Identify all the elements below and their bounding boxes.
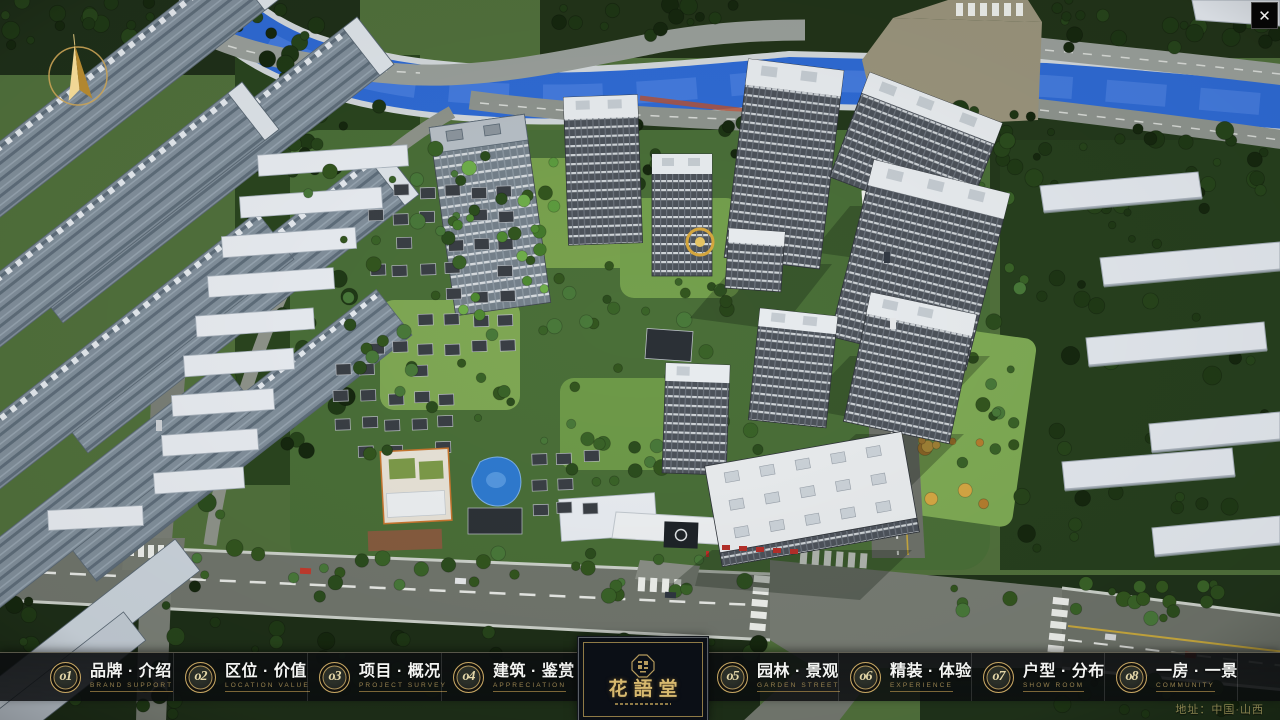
menu-item-label: 项目 · 概况 [359, 663, 441, 680]
menu-item-room-view[interactable]: o8 一房 · 一景 COMMUNITY [1104, 653, 1237, 701]
menu-number-badge: o2 [185, 662, 216, 693]
menu-group-right: o5 园林 · 景观 GARDEN STREET o6 精装 · 体验 EXPE… [705, 653, 1238, 701]
close-icon: ✕ [1258, 7, 1271, 25]
aerial-site-render[interactable] [0, 0, 1280, 720]
menu-item-label: 精装 · 体验 [890, 663, 971, 680]
menu-item-landscape[interactable]: o5 园林 · 景观 GARDEN STREET [705, 653, 838, 701]
menu-number-badge: o5 [717, 662, 748, 693]
menu-item-label: 户型 · 分布 [1023, 663, 1104, 680]
logo-subtitle-divider [615, 703, 671, 705]
menu-item-subtitle: GARDEN STREET [757, 682, 840, 692]
menu-number-badge: o3 [319, 662, 350, 693]
menu-item-subtitle: EXPERIENCE [890, 682, 953, 692]
project-address: 地址：中国·山西 [1175, 701, 1264, 717]
sales-presentation-screen: ✕ o1 品牌 · 介绍 BRAND SUPPORT o2 区位 · 价值 LO… [0, 0, 1280, 720]
menu-number-badge: o7 [983, 662, 1014, 693]
menu-item-label: 品牌 · 介绍 [90, 663, 173, 680]
menu-item-subtitle: BRAND SUPPORT [90, 682, 173, 692]
menu-item-label: 区位 · 价值 [225, 663, 307, 680]
menu-item-location-value[interactable]: o2 区位 · 价值 LOCATION VALUE [173, 653, 307, 701]
menu-item-subtitle: SHOW ROOM [1023, 682, 1084, 692]
menu-number-badge: o6 [850, 662, 881, 693]
menu-item-subtitle: PROJECT SURVEY [359, 682, 447, 692]
menu-item-subtitle: LOCATION VALUE [225, 682, 310, 692]
project-logo-plaque: 花語堂 [578, 637, 708, 720]
menu-item-subtitle: APPRECIATION [493, 682, 566, 692]
menu-item-interior-experience[interactable]: o6 精装 · 体验 EXPERIENCE [838, 653, 971, 701]
menu-group-left: o1 品牌 · 介绍 BRAND SUPPORT o2 区位 · 价值 LOCA… [39, 653, 575, 701]
menu-item-brand-intro[interactable]: o1 品牌 · 介绍 BRAND SUPPORT [39, 653, 173, 701]
menu-item-subtitle: COMMUNITY [1156, 682, 1215, 692]
menu-item-label: 一房 · 一景 [1156, 663, 1237, 680]
menu-item-project-overview[interactable]: o3 项目 · 概况 PROJECT SURVEY [307, 653, 441, 701]
menu-number-badge: o1 [50, 662, 81, 693]
menu-item-label: 园林 · 景观 [757, 663, 838, 680]
menu-item-architecture[interactable]: o4 建筑 · 鉴赏 APPRECIATION [441, 653, 575, 701]
close-button[interactable]: ✕ [1251, 2, 1278, 29]
menu-item-floorplan-distribution[interactable]: o7 户型 · 分布 SHOW ROOM [971, 653, 1104, 701]
seal-emblem-icon [631, 654, 655, 678]
menu-number-badge: o8 [1116, 662, 1147, 693]
project-logo-title: 花語堂 [602, 680, 683, 700]
menu-item-label: 建筑 · 鉴赏 [493, 663, 575, 680]
vignette-overlay [0, 0, 1280, 720]
menu-number-badge: o4 [453, 662, 484, 693]
